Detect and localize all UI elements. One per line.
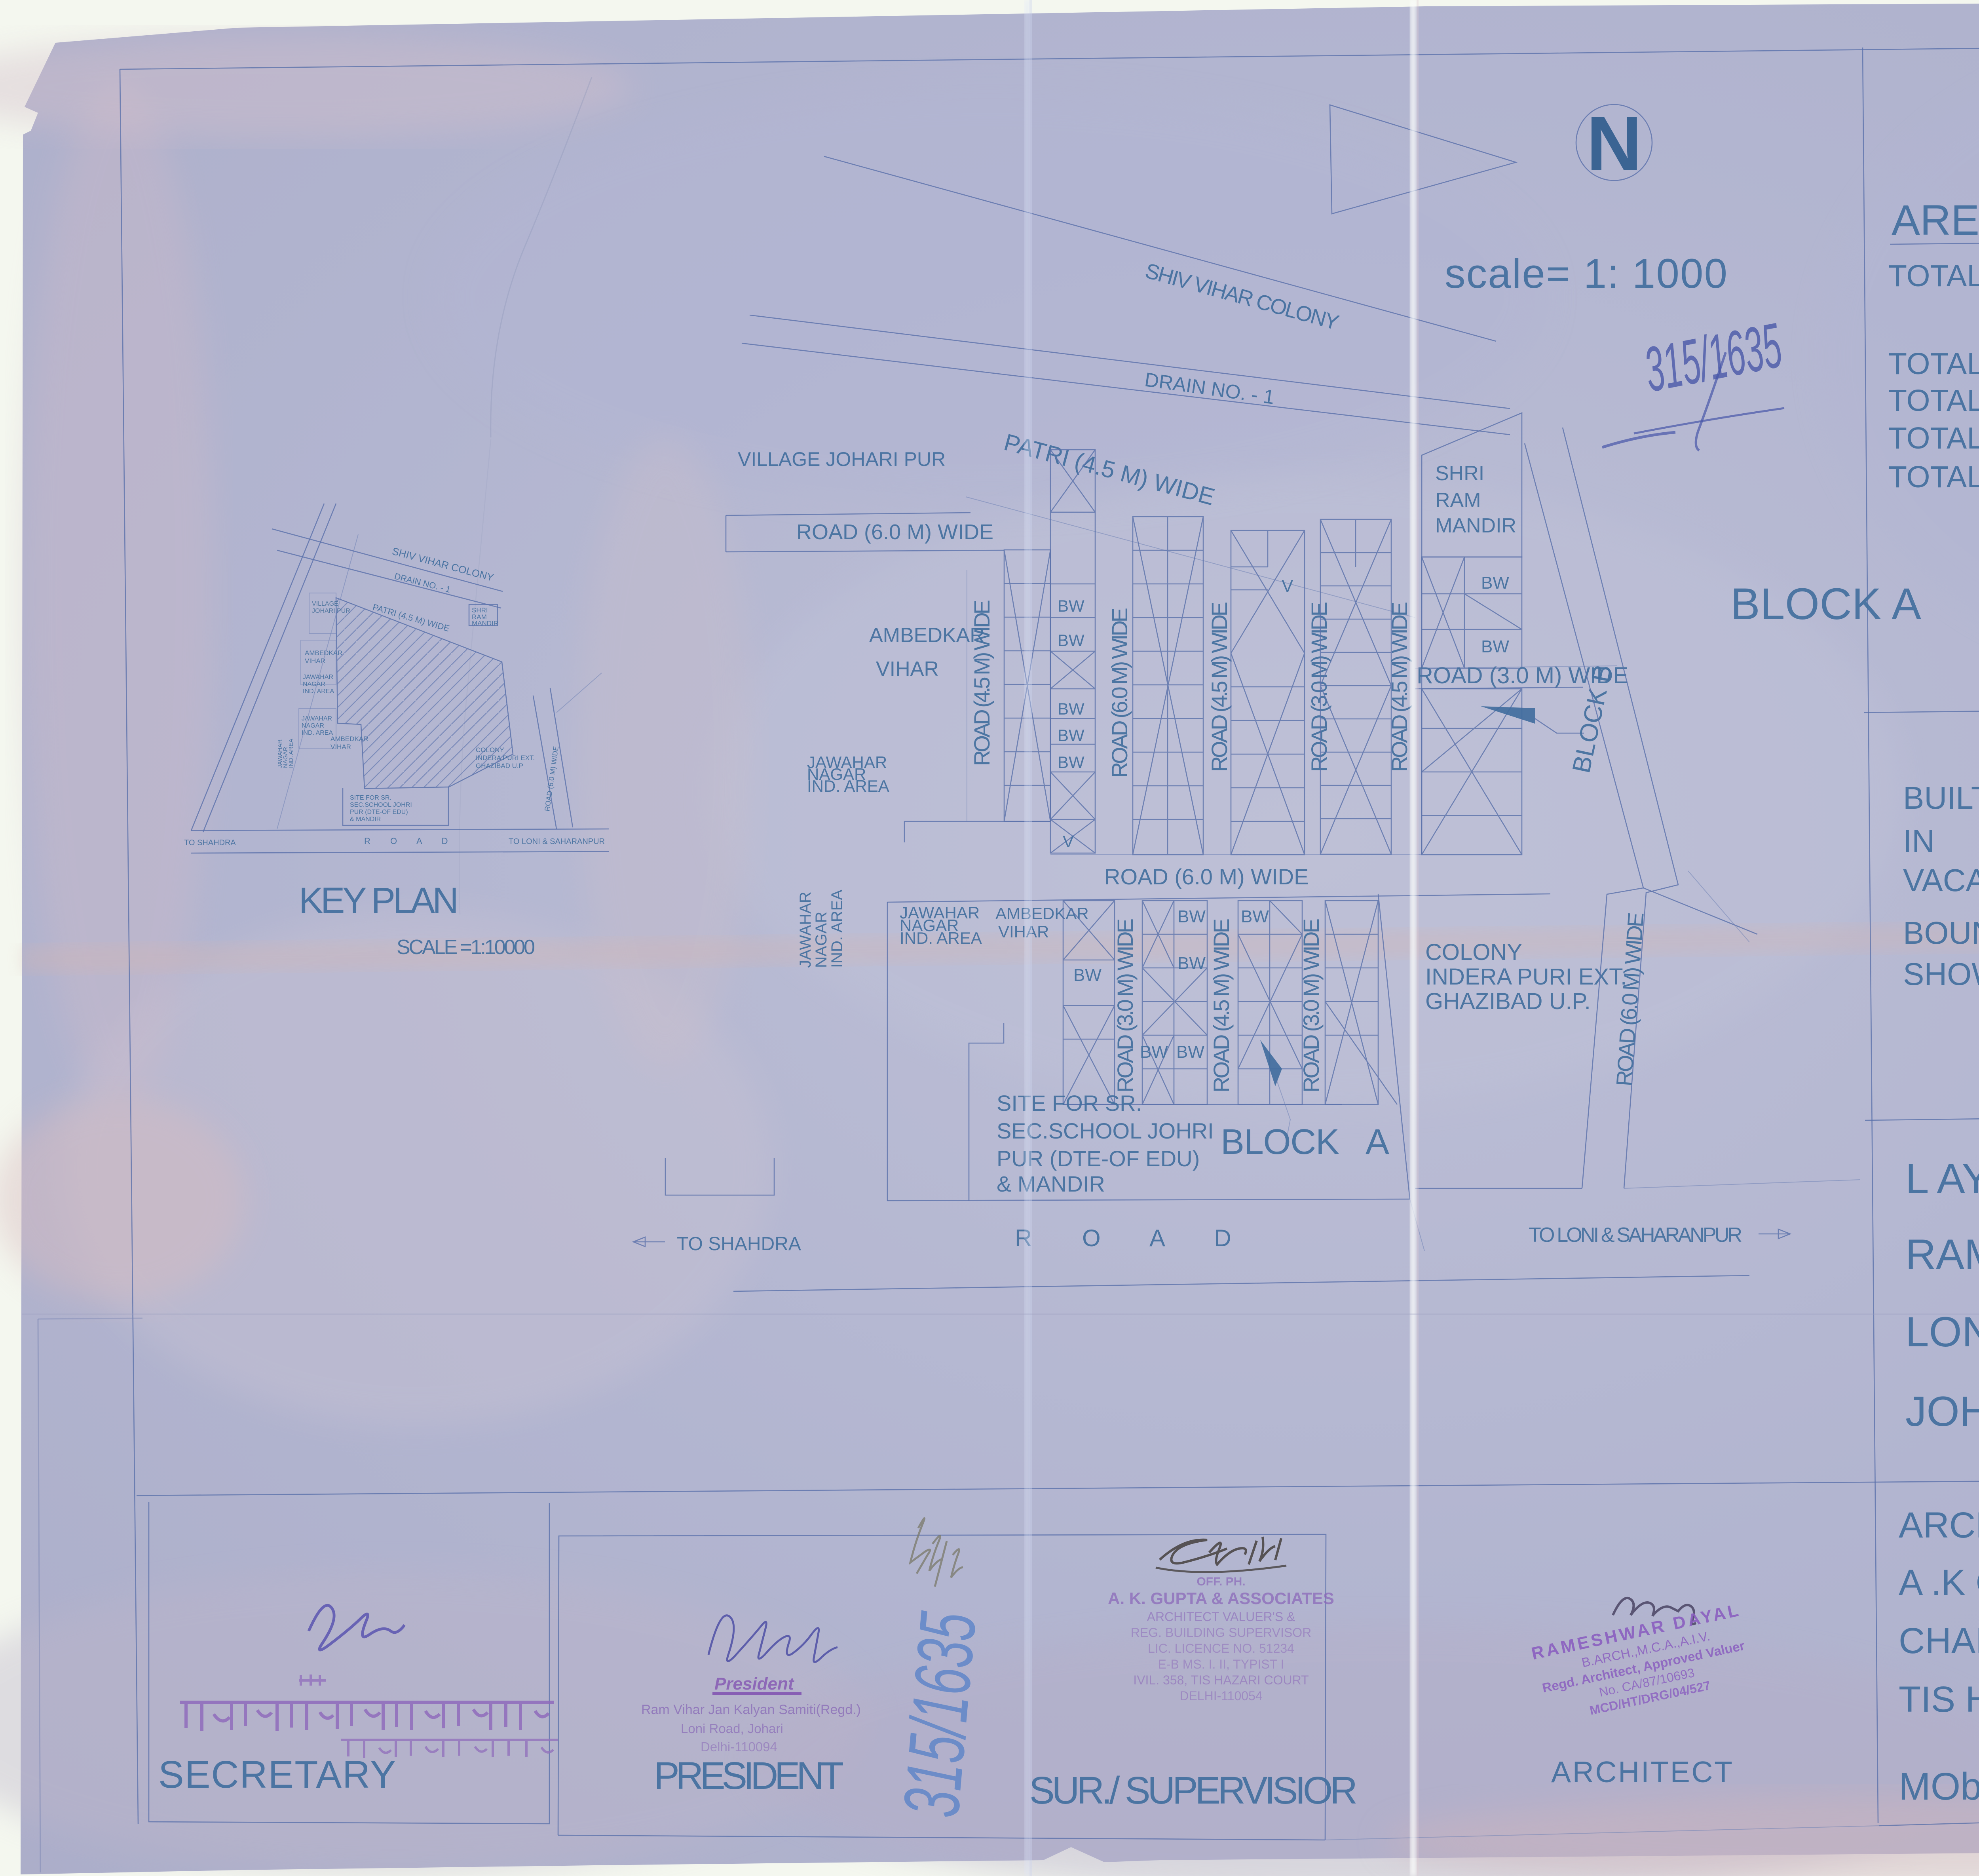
- svg-text:BLOCK A: BLOCK A: [1730, 579, 1921, 629]
- svg-text:President: President: [714, 1674, 795, 1694]
- svg-text:SITE FOR SR.: SITE FOR SR.: [350, 794, 391, 801]
- svg-text:scale= 1: 1000: scale= 1: 1000: [1445, 251, 1727, 297]
- svg-text:BW: BW: [1178, 954, 1206, 973]
- svg-text:KEY PLAN: KEY PLAN: [299, 880, 459, 921]
- svg-text:COLONY: COLONY: [1425, 939, 1522, 965]
- svg-text:DELHI-110054: DELHI-110054: [1179, 1689, 1262, 1703]
- svg-text:ARCHITECT VALUER'S &: ARCHITECT VALUER'S &: [1147, 1610, 1295, 1624]
- svg-text:E-B MS. I. II, TYPIST I: E-B MS. I. II, TYPIST I: [1158, 1657, 1284, 1671]
- svg-text:R O A D: R O A D: [364, 836, 456, 846]
- svg-text:SITE FOR SR.: SITE FOR SR.: [997, 1091, 1142, 1116]
- svg-text:V: V: [1063, 832, 1074, 851]
- svg-text:IND. AREA: IND. AREA: [807, 777, 889, 795]
- svg-text:TO LONI & SAHARANPUR: TO LONI & SAHARANPUR: [1529, 1224, 1742, 1247]
- svg-text:ROAD (4.5 M) WIDE: ROAD (4.5 M) WIDE: [969, 600, 994, 766]
- svg-text:AREA CHART: AREA CHART: [1892, 196, 1979, 244]
- svg-text:A .K GUPTA & ASSOICATES: A .K GUPTA & ASSOICATES: [1899, 1562, 1979, 1603]
- svg-text:MOb NO 9810219812 ,23963159.: MOb NO 9810219812 ,23963159.: [1899, 1765, 1979, 1808]
- svg-text:ARCHITECT SIGN.: ARCHITECT SIGN.: [1899, 1505, 1979, 1545]
- svg-text:JAWAHAR: JAWAHAR: [303, 674, 333, 680]
- svg-text:BLOCK: BLOCK: [1221, 1122, 1339, 1162]
- svg-text:AMBEDKAR: AMBEDKAR: [869, 624, 985, 647]
- svg-text:JAWAHAR: JAWAHAR: [797, 891, 814, 968]
- svg-text:IND. AREA: IND. AREA: [303, 688, 334, 695]
- svg-text:AMBEDKAR: AMBEDKAR: [305, 649, 342, 657]
- svg-text:VIHAR: VIHAR: [330, 743, 351, 751]
- svg-text:PRESIDENT: PRESIDENT: [654, 1754, 844, 1797]
- svg-text:315/1635: 315/1635: [887, 1609, 993, 1821]
- svg-text:SECRETARY: SECRETARY: [158, 1753, 396, 1796]
- svg-text:BW: BW: [1073, 966, 1102, 985]
- svg-text:NAGAR: NAGAR: [813, 912, 830, 968]
- svg-text:ROAD (3.0 M) WIDE: ROAD (3.0 M) WIDE: [1307, 602, 1331, 772]
- svg-text:OFF. PH.: OFF. PH.: [1197, 1575, 1245, 1588]
- svg-text:Delhi-110094: Delhi-110094: [701, 1739, 777, 1754]
- svg-text:RAM VIHAR (BLOCK A & B): RAM VIHAR (BLOCK A & B): [1905, 1230, 1979, 1278]
- svg-text:VACANT PLOT SHOWN IN: VACANT PLOT SHOWN IN: [1903, 863, 1979, 898]
- svg-text:BUILT UP HOUSE SHOWN: BUILT UP HOUSE SHOWN: [1903, 780, 1979, 815]
- svg-text:Loni Road, Johari: Loni Road, Johari: [681, 1721, 783, 1736]
- svg-text:SHOWN IN: SHOWN IN: [1903, 956, 1979, 992]
- svg-text:VILLAGE: VILLAGE: [312, 601, 338, 607]
- svg-text:TOTAL NO OF BUILT UP PLOT S =: TOTAL NO OF BUILT UP PLOT S = 128: [1888, 384, 1979, 418]
- svg-text:BW: BW: [1176, 1042, 1204, 1062]
- svg-text:ROAD (4.5 M) WIDE: ROAD (4.5 M) WIDE: [1387, 602, 1412, 772]
- svg-text:BW: BW: [1481, 573, 1509, 593]
- svg-text:TIS HAZARI COURTS: TIS HAZARI COURTS: [1899, 1679, 1979, 1720]
- svg-text:CHAMBER NO -58 CIVIAL SIDE: CHAMBER NO -58 CIVIAL SIDE: [1899, 1621, 1979, 1661]
- svg-text:IND. AREA: IND. AREA: [288, 739, 294, 768]
- svg-text:VILLAGE JOHARI PUR: VILLAGE JOHARI PUR: [738, 448, 946, 470]
- svg-text:N: N: [1586, 101, 1642, 187]
- svg-text:JOHARI PUR: JOHARI PUR: [312, 608, 350, 614]
- svg-text:ROAD (4.5 M) WIDE: ROAD (4.5 M) WIDE: [1207, 602, 1232, 772]
- svg-text:R O A D: R O A D: [1015, 1225, 1253, 1251]
- svg-text:BW: BW: [1058, 726, 1084, 745]
- svg-text:VIHAR: VIHAR: [305, 657, 325, 665]
- svg-text:TOTAL NO OF PLOTS =143: TOTAL NO OF PLOTS =143: [1888, 347, 1979, 381]
- svg-text:COLONY: COLONY: [476, 746, 504, 754]
- svg-text:A. K. GUPTA & ASSOCIATES: A. K. GUPTA & ASSOCIATES: [1108, 1589, 1334, 1608]
- svg-text:NAGAR: NAGAR: [303, 681, 325, 688]
- svg-text:IN: IN: [1903, 823, 1935, 859]
- svg-text:TOTAL AREA OF COLONY = (0.85 H: TOTAL AREA OF COLONY = (0.85 HCT.): [1888, 259, 1979, 293]
- svg-text:Ram Vihar Jan Kalyan Samiti(Re: Ram Vihar Jan Kalyan Samiti(Regd.): [641, 1702, 861, 1717]
- svg-text:INDERA PURI EXT.: INDERA PURI EXT.: [476, 754, 535, 762]
- svg-text:TOTAL NO OF BOUNDARY WALL = 13: TOTAL NO OF BOUNDARY WALL = 13: [1888, 421, 1979, 455]
- svg-text:JOHARI PUR DELHI-94: JOHARI PUR DELHI-94: [1905, 1388, 1979, 1435]
- svg-text:SHRI: SHRI: [1435, 462, 1484, 485]
- svg-text:IND. AREA: IND. AREA: [302, 730, 333, 736]
- svg-text:ROAD (6.0 M) WIDE: ROAD (6.0 M) WIDE: [796, 520, 993, 544]
- svg-text:LIC. LICENCE NO. 51234: LIC. LICENCE NO. 51234: [1148, 1641, 1294, 1656]
- svg-text:BW: BW: [1481, 637, 1509, 656]
- svg-text:ROAD (3.0 M) WIDE: ROAD (3.0 M) WIDE: [1113, 918, 1138, 1093]
- svg-text:ROAD (4.5 M) WIDE: ROAD (4.5 M) WIDE: [1209, 918, 1234, 1093]
- svg-text:BW: BW: [1140, 1042, 1168, 1062]
- svg-text:IND. AREA: IND. AREA: [900, 929, 982, 947]
- svg-text:BOUNDRY WALL PLOT: BOUNDRY WALL PLOT: [1903, 915, 1979, 950]
- svg-text:IND. AREA: IND. AREA: [828, 890, 846, 968]
- svg-text:SCALE =1:10000: SCALE =1:10000: [397, 936, 535, 959]
- svg-text:MANDIR: MANDIR: [1435, 514, 1516, 537]
- svg-text:RAM: RAM: [1435, 489, 1481, 512]
- svg-text:SEC.SCHOOL JOHRI: SEC.SCHOOL JOHRI: [350, 802, 412, 808]
- svg-text:AMBEDKAR: AMBEDKAR: [330, 735, 368, 743]
- svg-text:TO LONI & SAHARANPUR: TO LONI & SAHARANPUR: [509, 837, 605, 846]
- svg-text:NAGAR: NAGAR: [302, 722, 324, 729]
- svg-text:TO SHAHDRA: TO SHAHDRA: [184, 838, 236, 847]
- svg-text:BW: BW: [1058, 631, 1084, 650]
- svg-text:REG. BUILDING SUPERVISOR: REG. BUILDING SUPERVISOR: [1131, 1625, 1311, 1640]
- svg-text:JAWAHAR: JAWAHAR: [302, 715, 332, 722]
- svg-text:MANDIR: MANDIR: [472, 620, 498, 627]
- svg-text:BW: BW: [1058, 753, 1084, 772]
- svg-text:TO SHAHDRA: TO SHAHDRA: [677, 1234, 801, 1254]
- svg-text:& MANDIR: & MANDIR: [997, 1171, 1105, 1196]
- svg-text:ROAD (3.0 M) WIDE: ROAD (3.0 M) WIDE: [1299, 918, 1324, 1093]
- svg-text:TOTAL NO OF VACANTS = 2: TOTAL NO OF VACANTS = 2: [1888, 460, 1979, 494]
- svg-text:VIHAR: VIHAR: [998, 922, 1049, 941]
- svg-text:ARCHITECT: ARCHITECT: [1551, 1755, 1732, 1789]
- svg-text:IVIL. 358, TIS HAZARI COURT: IVIL. 358, TIS HAZARI COURT: [1133, 1673, 1309, 1687]
- svg-text:ROAD (6.0 M) WIDE: ROAD (6.0 M) WIDE: [1107, 608, 1132, 778]
- svg-text:& MANDIR: & MANDIR: [350, 816, 381, 823]
- svg-text:ROAD (6.0 M) WIDE: ROAD (6.0 M) WIDE: [1104, 864, 1309, 889]
- svg-text:GHAZIBAD U.P.: GHAZIBAD U.P.: [1425, 988, 1591, 1014]
- svg-text:SUR./ SUPERVISIOR: SUR./ SUPERVISIOR: [1029, 1769, 1358, 1812]
- svg-text:BW: BW: [1178, 907, 1206, 926]
- svg-text:L AY OUT PLAN OF: L AY OUT PLAN OF: [1905, 1155, 1979, 1202]
- svg-text:GHAZIBAD U.P: GHAZIBAD U.P: [476, 762, 523, 770]
- svg-text:BW: BW: [1058, 699, 1084, 718]
- svg-text:A: A: [1366, 1122, 1389, 1162]
- svg-text:VIHAR: VIHAR: [876, 658, 939, 680]
- svg-text:BW: BW: [1058, 597, 1084, 615]
- svg-text:PUR (DTE-OF EDU): PUR (DTE-OF EDU): [350, 809, 408, 815]
- svg-text:INDERA PURI EXT.: INDERA PURI EXT.: [1425, 964, 1627, 990]
- svg-text:BW: BW: [1241, 907, 1269, 926]
- svg-text:V: V: [1282, 576, 1293, 596]
